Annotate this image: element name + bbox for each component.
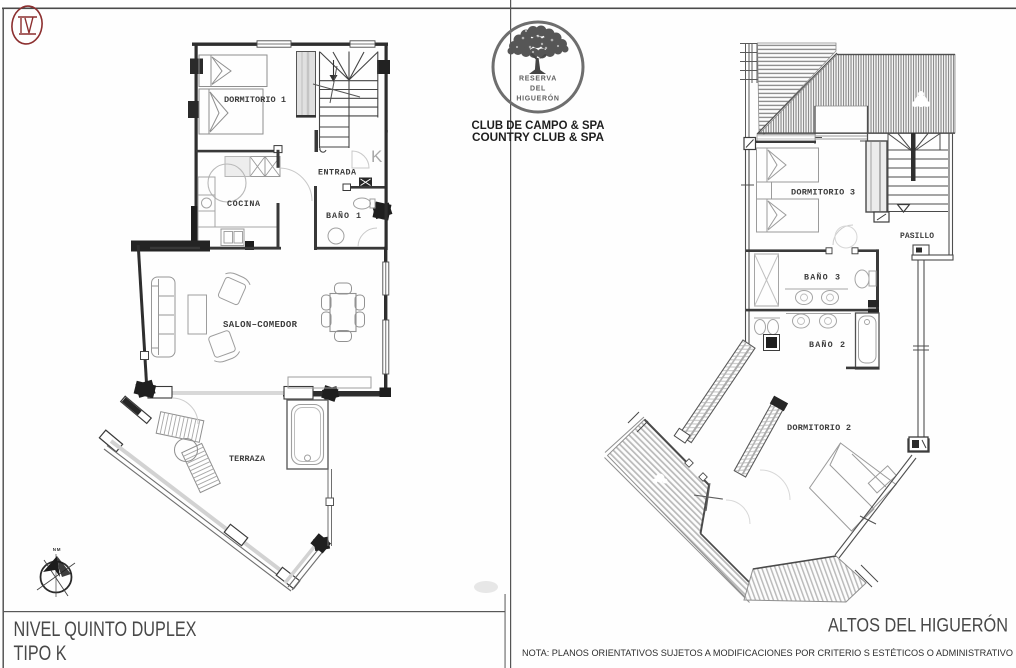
svg-text:K: K xyxy=(371,147,383,166)
svg-text:NIVEL QUINTO DUPLEX: NIVEL QUINTO DUPLEX xyxy=(14,618,197,641)
svg-text:COCINA: COCINA xyxy=(227,199,261,209)
svg-text:TIPO K: TIPO K xyxy=(14,642,67,665)
svg-text:DORMITORIO 1: DORMITORIO 1 xyxy=(224,95,286,105)
svg-text:RESERVA: RESERVA xyxy=(519,76,557,83)
svg-text:HIGUERÓN: HIGUERÓN xyxy=(516,94,559,103)
svg-text:ENTRADA: ENTRADA xyxy=(318,168,357,178)
svg-text:ALTOS DEL HIGUERÓN: ALTOS DEL HIGUERÓN xyxy=(828,615,1008,637)
svg-text:SALON–COMEDOR: SALON–COMEDOR xyxy=(223,320,298,330)
svg-text:NM: NM xyxy=(53,547,62,552)
svg-text:DORMITORIO 3: DORMITORIO 3 xyxy=(791,188,855,198)
svg-text:TERRAZA: TERRAZA xyxy=(229,454,266,464)
svg-text:BAÑO 2: BAÑO 2 xyxy=(809,339,845,350)
svg-text:NOTA: PLANOS ORIENTATIVOS SUJE: NOTA: PLANOS ORIENTATIVOS SUJETOS A MODI… xyxy=(522,648,1013,658)
svg-text:BAÑO 3: BAÑO 3 xyxy=(804,272,840,283)
svg-text:DORMITORIO 2: DORMITORIO 2 xyxy=(787,423,851,433)
svg-text:BAÑO 1: BAÑO 1 xyxy=(326,210,361,221)
svg-text:COUNTRY CLUB & SPA: COUNTRY CLUB & SPA xyxy=(472,130,604,144)
svg-text:DEL: DEL xyxy=(530,86,546,93)
svg-text:PASILLO: PASILLO xyxy=(900,232,934,241)
